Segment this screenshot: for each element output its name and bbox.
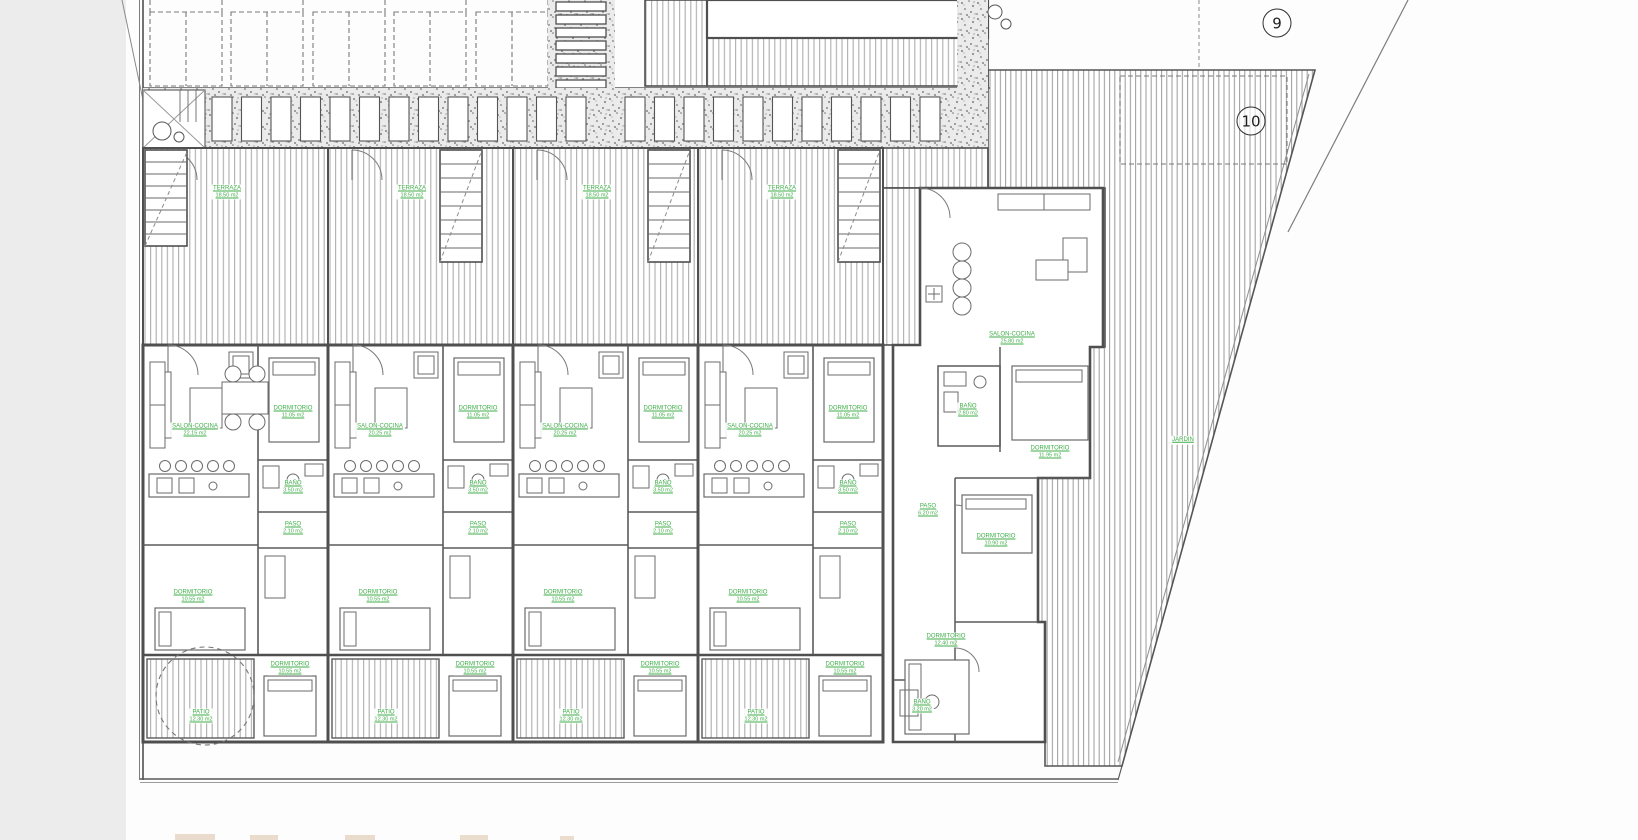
- room-label-bano: BAÑO3.50 m2: [651, 480, 675, 495]
- room-label-paso: PASO2.10 m2: [466, 521, 490, 536]
- floor-plan-drawing: [0, 0, 1638, 840]
- room-label-dormitorio: DORMITORIO10.55 m2: [639, 661, 682, 676]
- room-label-dormitorio: DORMITORIO10.90 m2: [975, 533, 1018, 548]
- room-label-dormitorio: DORMITORIO11.05 m2: [827, 405, 870, 420]
- room-label-paso: PASO2.10 m2: [651, 521, 675, 536]
- room-label-bano: BAÑO2.80 m2: [956, 403, 980, 418]
- room-label-dormitorio: DORMITORIO11.05 m2: [457, 405, 500, 420]
- room-label-terraza: TERRAZA18.50 m2: [581, 185, 613, 200]
- plot-marker-9: 9: [1263, 9, 1292, 38]
- room-label-garden: JARDIN: [1170, 436, 1196, 445]
- room-label-patio: PATIO12.30 m2: [373, 709, 400, 724]
- room-label-patio: PATIO12.30 m2: [743, 709, 770, 724]
- room-label-dormitorio: DORMITORIO10.55 m2: [357, 589, 400, 604]
- room-label-terraza: TERRAZA18.50 m2: [766, 185, 798, 200]
- room-label-paso: PASO6.20 m2: [916, 503, 940, 518]
- room-label-bano: BAÑO3.20 m2: [910, 699, 934, 714]
- room-label-dormitorio: DORMITORIO10.55 m2: [454, 661, 497, 676]
- room-label-dormitorio: DORMITORIO11.95 m2: [1029, 445, 1072, 460]
- room-label-salon: SALON-COCINA20.25 m2: [355, 423, 405, 438]
- room-label-bano: BAÑO3.50 m2: [836, 480, 860, 495]
- room-label-salon: SALON-COCINA20.25 m2: [540, 423, 590, 438]
- room-label-bano: BAÑO3.50 m2: [281, 480, 305, 495]
- room-label-paso: PASO2.10 m2: [836, 521, 860, 536]
- room-label-dormitorio: DORMITORIO11.05 m2: [272, 405, 315, 420]
- floor-plan-page: TERRAZA18.50 m2 SALON-COCINA22.15 m2 DOR…: [0, 0, 1638, 840]
- room-label-terraza: TERRAZA18.50 m2: [211, 185, 243, 200]
- room-label-salon: SALON-COCINA22.15 m2: [170, 423, 220, 438]
- room-label-patio: PATIO12.30 m2: [188, 709, 215, 724]
- room-label-patio: PATIO12.30 m2: [558, 709, 585, 724]
- room-label-dormitorio: DORMITORIO10.55 m2: [542, 589, 585, 604]
- room-label-dormitorio: DORMITORIO12.40 m2: [925, 633, 968, 648]
- room-label-salon: SALON-COCINA25.80 m2: [987, 331, 1037, 346]
- plot-marker-10: 10: [1237, 107, 1266, 136]
- room-label-terraza: TERRAZA18.50 m2: [396, 185, 428, 200]
- room-label-bano: BAÑO3.50 m2: [466, 480, 490, 495]
- room-label-dormitorio: DORMITORIO10.55 m2: [824, 661, 867, 676]
- room-label-dormitorio: DORMITORIO11.05 m2: [642, 405, 685, 420]
- room-label-dormitorio: DORMITORIO10.55 m2: [269, 661, 312, 676]
- room-label-dormitorio: DORMITORIO10.55 m2: [727, 589, 770, 604]
- room-label-paso: PASO2.10 m2: [281, 521, 305, 536]
- room-label-salon: SALON-COCINA20.25 m2: [725, 423, 775, 438]
- room-label-dormitorio: DORMITORIO10.55 m2: [172, 589, 215, 604]
